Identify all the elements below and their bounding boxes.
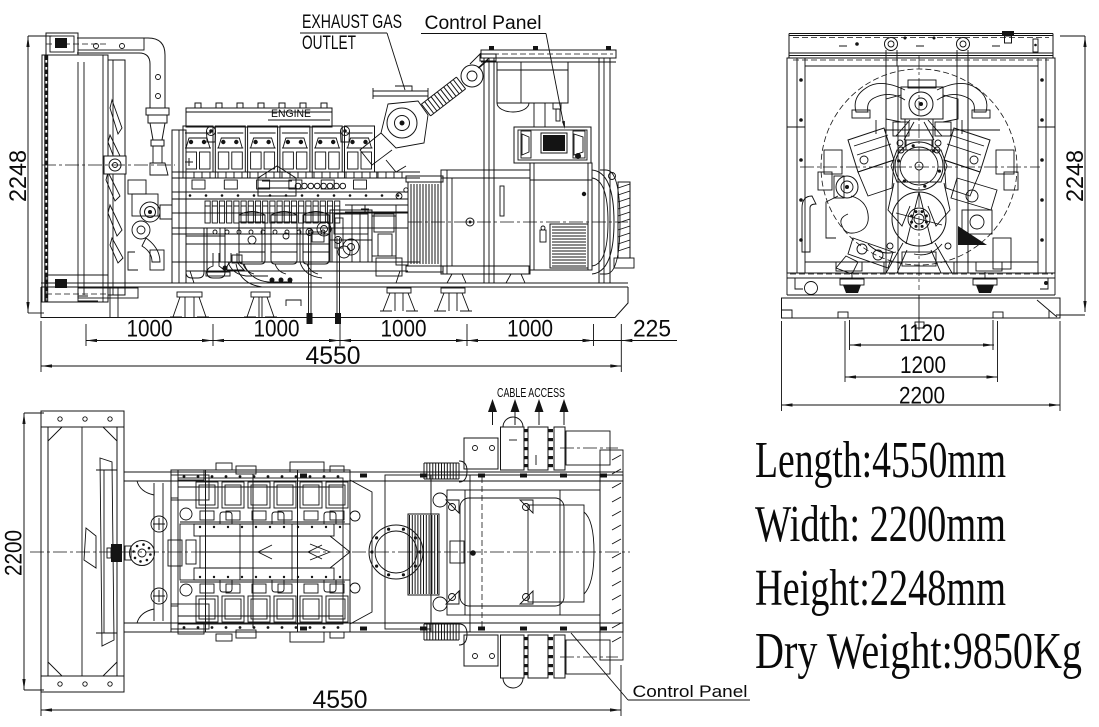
svg-text:1000: 1000 (507, 316, 553, 343)
svg-text:Length:4550mm: Length:4550mm (755, 432, 1006, 489)
svg-text:CABLE ACCESS: CABLE ACCESS (497, 385, 565, 400)
svg-text:Control Panel: Control Panel (633, 682, 748, 701)
svg-text:Height:2248mm: Height:2248mm (755, 560, 1006, 617)
svg-text:OUTLET: OUTLET (302, 33, 356, 54)
svg-text:2200: 2200 (1, 530, 28, 576)
svg-text:1120: 1120 (899, 320, 945, 347)
svg-text:2200: 2200 (899, 383, 945, 410)
svg-text:1000: 1000 (254, 316, 300, 343)
svg-text:2248: 2248 (1062, 150, 1089, 202)
svg-text:ENGINE: ENGINE (271, 108, 311, 120)
svg-text:4550: 4550 (306, 342, 361, 370)
svg-text:2248: 2248 (5, 150, 32, 202)
svg-text:EXHAUST GAS: EXHAUST GAS (302, 12, 402, 33)
svg-text:1000: 1000 (381, 316, 427, 343)
svg-text:1000: 1000 (127, 316, 173, 343)
svg-text:1200: 1200 (900, 352, 946, 379)
svg-text:Width: 2200mm: Width: 2200mm (755, 496, 1006, 553)
svg-text:Control Panel: Control Panel (425, 13, 542, 34)
svg-text:225: 225 (633, 316, 671, 343)
svg-text:4550: 4550 (313, 686, 368, 714)
svg-text:Dry Weight:9850Kg: Dry Weight:9850Kg (755, 623, 1082, 680)
